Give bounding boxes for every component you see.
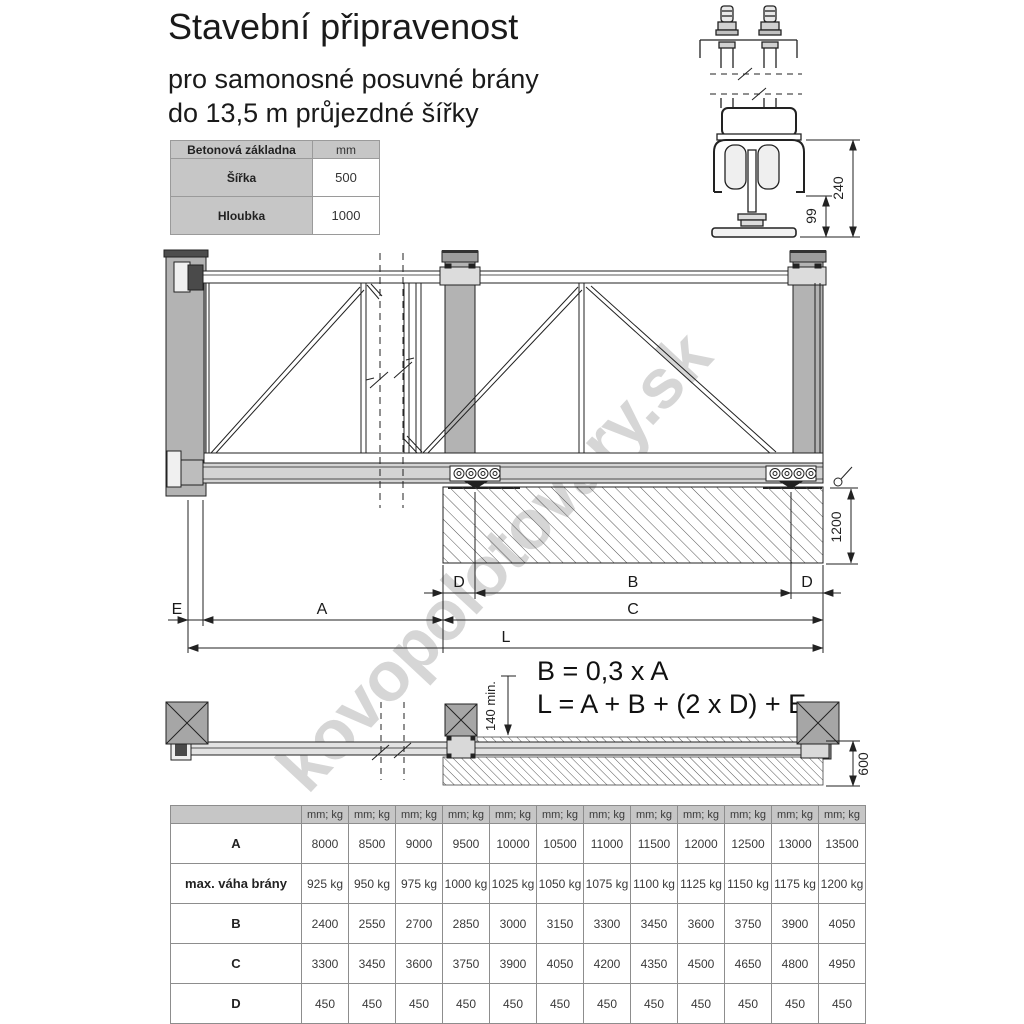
spec-cell: 4200: [584, 944, 631, 984]
top-rail: [198, 271, 823, 283]
dim-1200-label: 1200: [828, 511, 844, 542]
spec-cell: 1025 kg: [490, 864, 537, 904]
spec-cell: 450: [772, 984, 819, 1024]
spec-cell: 450: [302, 984, 349, 1024]
spec-cell: 1175 kg: [772, 864, 819, 904]
post-plan: [797, 702, 839, 758]
spec-unit-header: mm; kg: [537, 806, 584, 824]
spec-cell: 3450: [349, 944, 396, 984]
spec-unit-header: mm; kg: [302, 806, 349, 824]
spec-cell: 3900: [490, 944, 537, 984]
spec-unit-header: mm; kg: [490, 806, 537, 824]
right-post: [793, 261, 823, 480]
dim-99-label: 99: [803, 208, 819, 224]
spec-cell: 4050: [537, 944, 584, 984]
spec-cell: 11000: [584, 824, 631, 864]
dim-240-label: 240: [830, 176, 846, 200]
spec-cell: 10000: [490, 824, 537, 864]
dim-d-right-label: D: [801, 574, 813, 591]
spec-cell: 975 kg: [396, 864, 443, 904]
spec-unit-header: mm; kg: [725, 806, 772, 824]
roller-carriage: [763, 466, 822, 488]
spec-cell: 4800: [772, 944, 819, 984]
dim-e-label: E: [172, 601, 183, 618]
dim-a-label: A: [317, 601, 328, 618]
hanger-bolt-left: [716, 6, 738, 48]
spec-cell: 13000: [772, 824, 819, 864]
trolley-detail-drawing: [700, 6, 860, 237]
gate-elevation-drawing: [164, 250, 858, 564]
bottom-chord: [204, 453, 823, 463]
spec-unit-header: mm; kg: [443, 806, 490, 824]
spec-cell: 450: [490, 984, 537, 1024]
dim-140min-label: 140 min.: [483, 681, 498, 731]
spec-cell: 450: [725, 984, 772, 1024]
foundation-plan: [443, 757, 823, 785]
dim-d-left-label: D: [453, 574, 465, 591]
spec-cell: 3300: [302, 944, 349, 984]
spec-cell: 1100 kg: [631, 864, 678, 904]
post-plan: [445, 704, 477, 758]
spec-table-row: A800085009000950010000105001100011500120…: [171, 824, 866, 864]
gate-plan-drawing: [166, 676, 860, 786]
spec-cell: 11500: [631, 824, 678, 864]
guide-bracket: [174, 262, 203, 292]
spec-cell: 8000: [302, 824, 349, 864]
spec-cell: 8500: [349, 824, 396, 864]
spec-row-label: max. váha brány: [171, 864, 302, 904]
foundation-block: [443, 487, 823, 563]
spec-cell: 450: [631, 984, 678, 1024]
spec-table-row: B240025502700285030003150330034503600375…: [171, 904, 866, 944]
spec-cell: 9500: [443, 824, 490, 864]
spec-cell: 450: [584, 984, 631, 1024]
spec-cell: 3750: [443, 944, 490, 984]
spec-cell: 13500: [819, 824, 866, 864]
spec-cell: 4500: [678, 944, 725, 984]
spec-table-row: C330034503600375039004050420043504500465…: [171, 944, 866, 984]
spec-cell: 12500: [725, 824, 772, 864]
dim-600-label: 600: [855, 752, 871, 776]
spec-cell: 3750: [725, 904, 772, 944]
spec-cell: 3600: [396, 944, 443, 984]
spec-cell: 2850: [443, 904, 490, 944]
spec-unit-header: mm; kg: [678, 806, 725, 824]
post-plan: [166, 702, 208, 744]
spec-unit-header: mm; kg: [584, 806, 631, 824]
spec-cell: 4650: [725, 944, 772, 984]
dim-c-label: C: [627, 601, 639, 618]
spec-cell: 1125 kg: [678, 864, 725, 904]
spec-cell: 450: [443, 984, 490, 1024]
dim-b-label: B: [628, 574, 639, 591]
spec-unit-header: mm; kg: [396, 806, 443, 824]
spec-cell: 2700: [396, 904, 443, 944]
spec-cell: 1075 kg: [584, 864, 631, 904]
spec-cell: 1000 kg: [443, 864, 490, 904]
spec-unit-header: mm; kg: [819, 806, 866, 824]
spec-corner-cell: [171, 806, 302, 824]
spec-cell: 450: [349, 984, 396, 1024]
spec-row-label: B: [171, 904, 302, 944]
spec-cell: 3300: [584, 904, 631, 944]
spec-table-row: max. váha brány925 kg950 kg975 kg1000 kg…: [171, 864, 866, 904]
rail-plan: [180, 742, 823, 755]
spec-cell: 12000: [678, 824, 725, 864]
spec-cell: 925 kg: [302, 864, 349, 904]
spec-cell: 3450: [631, 904, 678, 944]
dim-l-label: L: [502, 629, 511, 646]
spec-cell: 950 kg: [349, 864, 396, 904]
spec-cell: 4950: [819, 944, 866, 984]
spec-cell: 3150: [537, 904, 584, 944]
spec-cell: 2400: [302, 904, 349, 944]
spec-cell: 1150 kg: [725, 864, 772, 904]
spec-cell: 1200 kg: [819, 864, 866, 904]
spec-cell: 10500: [537, 824, 584, 864]
spec-cell: 3600: [678, 904, 725, 944]
spec-unit-header: mm; kg: [772, 806, 819, 824]
spec-unit-header: mm; kg: [631, 806, 678, 824]
spec-row-label: A: [171, 824, 302, 864]
spec-cell: 3900: [772, 904, 819, 944]
spec-unit-header: mm; kg: [349, 806, 396, 824]
spec-cell: 4050: [819, 904, 866, 944]
spec-table: mm; kgmm; kgmm; kgmm; kgmm; kgmm; kgmm; …: [170, 805, 866, 1024]
spec-cell: 9000: [396, 824, 443, 864]
spec-cell: 1050 kg: [537, 864, 584, 904]
spec-cell: 450: [819, 984, 866, 1024]
spec-row-label: C: [171, 944, 302, 984]
spec-row-label: D: [171, 984, 302, 1024]
spec-cell: 3000: [490, 904, 537, 944]
spec-cell: 450: [537, 984, 584, 1024]
hanger-bolt-right: [759, 6, 781, 48]
spec-table-row: D450450450450450450450450450450450450: [171, 984, 866, 1024]
break-symbol: [738, 68, 766, 100]
spec-cell: 450: [678, 984, 725, 1024]
spec-cell: 4350: [631, 944, 678, 984]
spec-cell: 450: [396, 984, 443, 1024]
spec-cell: 2550: [349, 904, 396, 944]
middle-post: [445, 261, 475, 480]
